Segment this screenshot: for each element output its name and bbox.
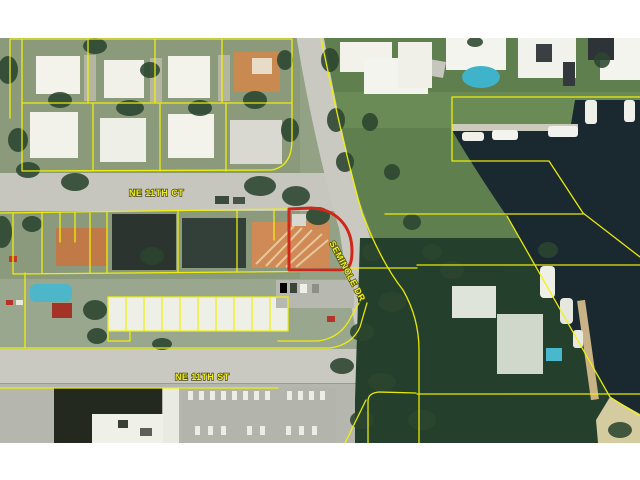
street-label-ne-11th-st: NE 11TH ST — [175, 372, 230, 382]
aerial-parcel-map-page: NE 11TH CT SEMINOLE DR NE 11TH ST — [0, 0, 640, 480]
aerial-map[interactable]: NE 11TH CT SEMINOLE DR NE 11TH ST — [0, 0, 640, 480]
bottom-buildings — [54, 388, 336, 444]
street-label-ne-11th-ct: NE 11TH CT — [129, 188, 184, 198]
aerial-photo-layer: NE 11TH CT SEMINOLE DR NE 11TH ST — [0, 30, 640, 444]
